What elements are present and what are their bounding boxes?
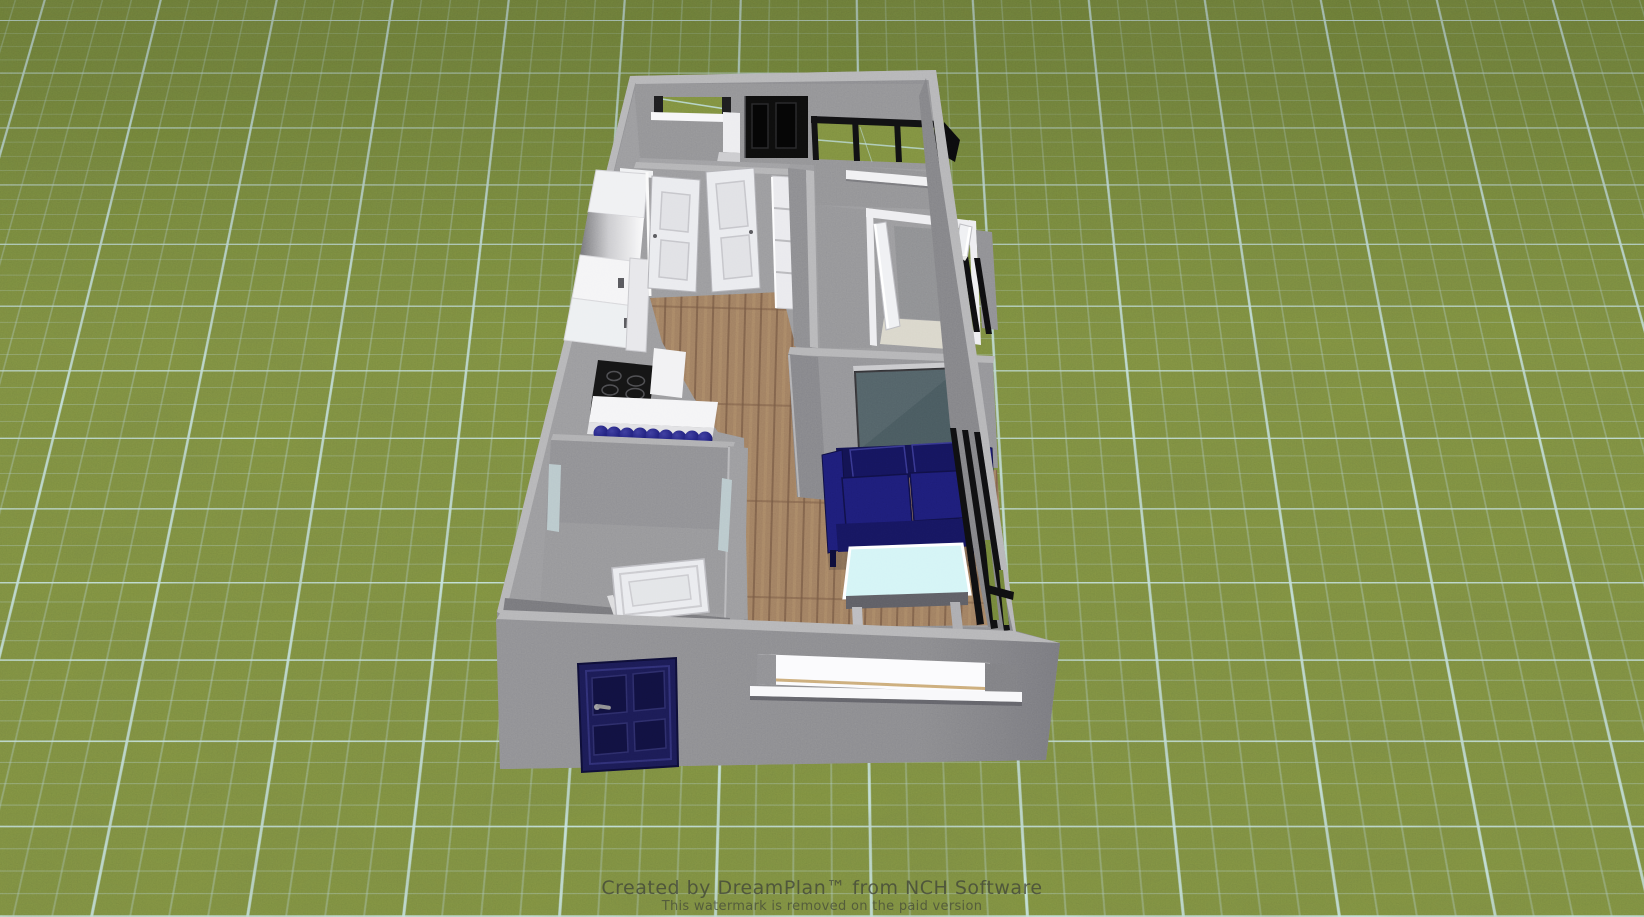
window-cap-right <box>985 663 1018 694</box>
sofa-leg <box>830 550 836 567</box>
door-panel <box>634 719 666 751</box>
door-panel <box>633 671 665 711</box>
counter-2 <box>564 298 634 348</box>
table-glass-top <box>844 544 970 598</box>
window-cap-left <box>757 654 776 685</box>
shower-glass-left[interactable] <box>547 464 561 532</box>
house-model-canvas[interactable] <box>0 0 1644 917</box>
back-wall[interactable] <box>630 70 960 175</box>
back-black-door[interactable] <box>745 96 808 158</box>
front-door[interactable] <box>578 658 678 772</box>
back-window[interactable] <box>651 96 731 122</box>
tall-cabinet <box>626 258 650 352</box>
white-column <box>723 112 740 153</box>
bathroom-door[interactable] <box>612 559 709 622</box>
door-handle <box>749 230 753 234</box>
dreamplan-3d-viewport: { "watermark": { "line1": "Created by Dr… <box>0 0 1644 917</box>
door-handle <box>653 234 657 238</box>
front-wall[interactable] <box>496 610 1060 772</box>
counter-return <box>650 348 686 398</box>
interior-door-right[interactable] <box>706 168 760 292</box>
sofa-seat <box>842 474 912 527</box>
refrigerator[interactable] <box>580 212 644 262</box>
cabinet-handle <box>618 278 624 288</box>
interior-door-left[interactable] <box>647 172 700 296</box>
door-panel <box>593 723 628 755</box>
